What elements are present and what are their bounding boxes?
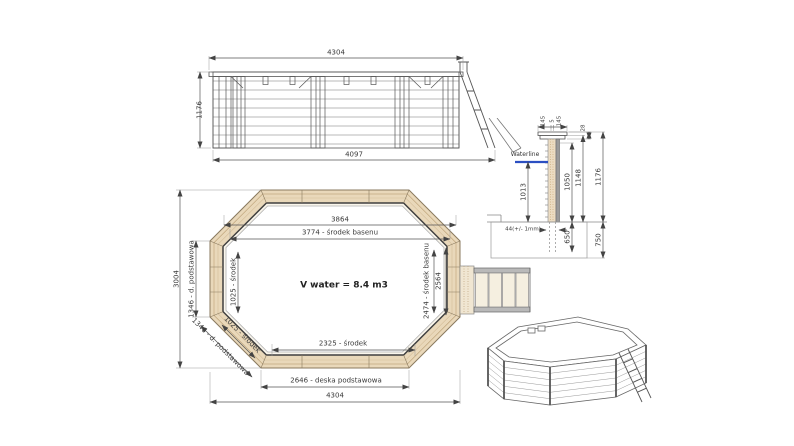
plan-dim-overall-width: 4304 [326, 393, 344, 400]
pool-3d-view [478, 302, 653, 432]
pool-3d-linework [478, 302, 653, 432]
elevation-dim-top: 4304 [327, 50, 345, 57]
plan-dim-left-board: 1346 - d. podstawowa [189, 240, 196, 318]
section-dim-total-height: 1176 [596, 168, 603, 186]
section-dim-foundation-depth: 750 [596, 233, 603, 246]
plan-dim-overall-height: 3004 [174, 270, 181, 288]
elevation-dim-bottom: 4097 [345, 152, 363, 159]
section-dim-cap-height: 28 [581, 125, 587, 132]
plan-dim-left-center: 1025 - środek [231, 258, 238, 306]
section-dim-cap-left: 145 [541, 116, 547, 127]
section-dim-post-depth: 650 [565, 230, 572, 243]
section-dim-wall-height: 1148 [576, 169, 583, 187]
plan-dim-right-outer: 2564 [436, 272, 443, 290]
plan-dim-right-center: 2474 - środek basenu [424, 243, 431, 319]
section-dim-cap-gap: 5 [550, 119, 556, 123]
water-volume-label: V water = 8.4 m3 [300, 282, 388, 291]
section-dim-cap-right: 145 [557, 116, 563, 127]
elevation-dim-left: 1176 [197, 101, 204, 119]
plan-dim-bottom-center: 2325 - środek [319, 341, 367, 348]
plan-dim-bottom-board: 2646 - deska podstawowa [290, 378, 382, 385]
plan-dim-top-outer: 3864 [331, 217, 349, 224]
elevation-view: 4304 1176 4097 [193, 48, 499, 168]
pool-technical-drawing: 4304 1176 4097 [0, 0, 794, 446]
plan-dim-top-center: 3774 - środek basenu [302, 230, 378, 237]
section-dim-wall-inner-height: 1050 [565, 173, 572, 191]
waterline-label: Waterline [511, 152, 540, 158]
